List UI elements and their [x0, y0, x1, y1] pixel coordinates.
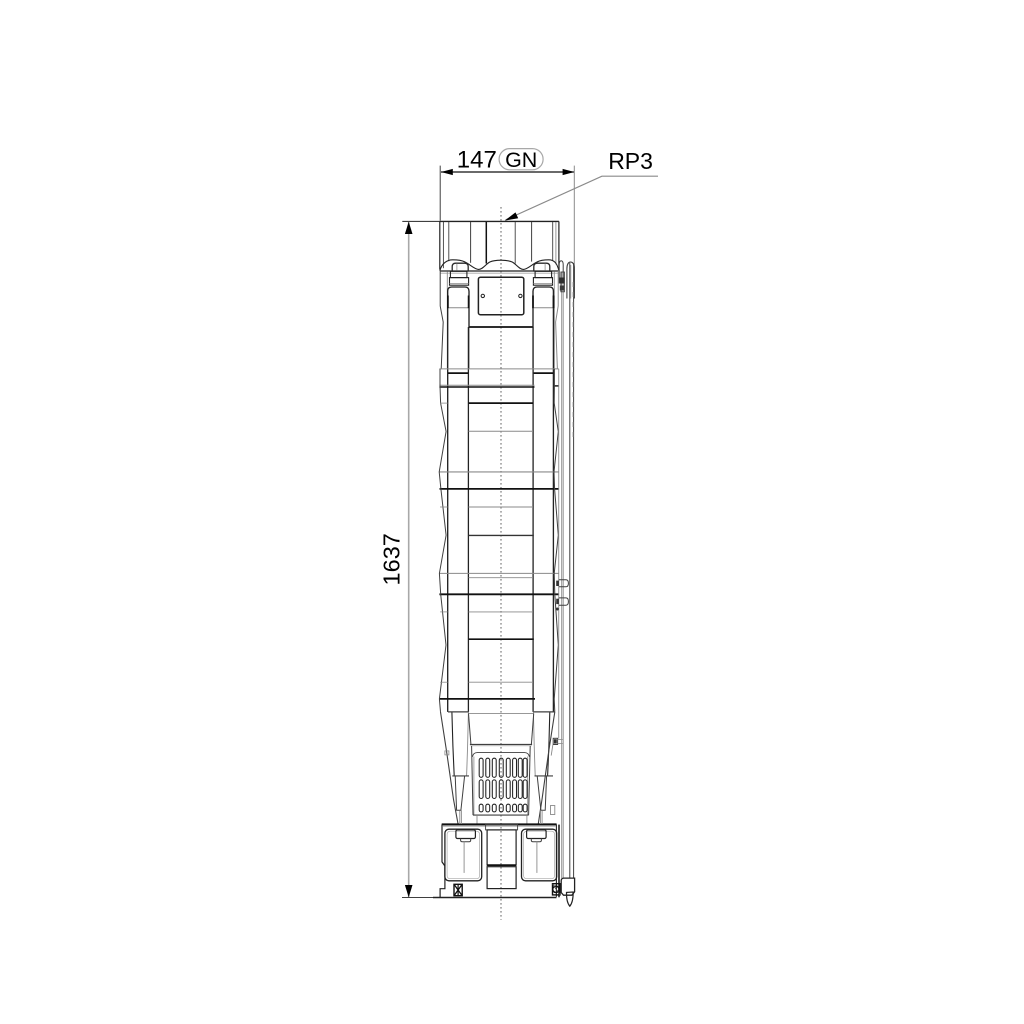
svg-text:GN: GN	[505, 148, 537, 172]
svg-text:1637: 1637	[379, 533, 405, 585]
svg-text:147: 147	[457, 146, 497, 173]
svg-text:RP3: RP3	[608, 148, 653, 174]
